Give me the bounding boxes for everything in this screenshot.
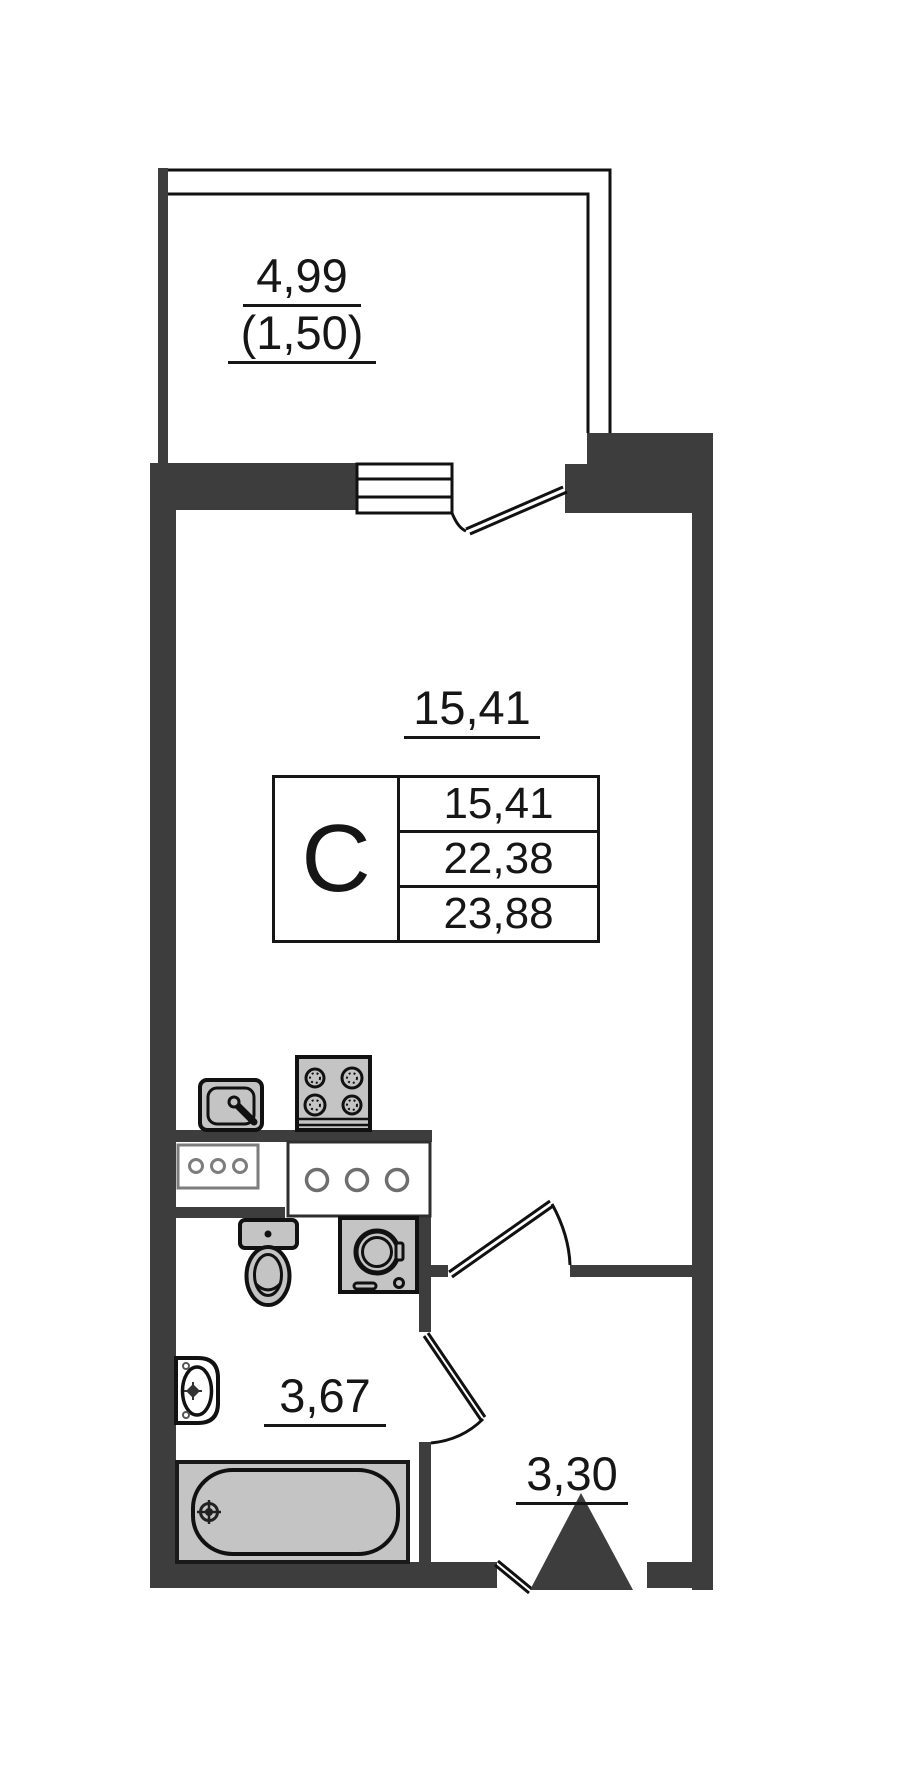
vent-box-icon	[178, 1145, 258, 1188]
bathtub-icon	[177, 1462, 408, 1562]
window-frame	[357, 464, 452, 513]
bathroom-door-arc	[431, 1419, 483, 1443]
balcony-door	[452, 487, 567, 534]
wall-balcony-left	[158, 168, 168, 464]
entrance-door	[495, 1493, 633, 1593]
floor-plan-canvas: 4,99 (1,50) 15,41 3,67 3,30 С 15,41 22,3…	[0, 0, 900, 1768]
washbasin-icon	[176, 1358, 218, 1423]
stamp-living-area: 15,41	[397, 775, 600, 833]
wall-bathroom-north	[150, 1130, 432, 1142]
wall-west	[150, 463, 176, 1588]
stamp-total-area: 23,88	[397, 885, 600, 943]
entrance-triangle-icon	[530, 1493, 633, 1590]
toilet-button	[265, 1231, 272, 1238]
room-door	[449, 1201, 570, 1277]
balcony-door-arc	[452, 513, 466, 531]
balcony-outer-line	[158, 170, 610, 433]
washbasin-screw-top	[183, 1363, 189, 1369]
stamp-type-letter: С	[272, 775, 400, 943]
counter-box-icon	[288, 1142, 430, 1216]
balcony-area-label: 4,99	[243, 252, 361, 307]
vent-box-holes	[190, 1160, 247, 1173]
wall-north-right-lower	[565, 464, 713, 513]
washbasin-screw-bottom	[183, 1412, 189, 1418]
sink-faucet-base	[229, 1097, 239, 1107]
balcony-door-leaf	[466, 487, 567, 534]
bathroom-door	[424, 1333, 485, 1443]
wall-hall-north	[570, 1265, 692, 1277]
hall-area-label: 3,30	[516, 1450, 628, 1505]
toilet-icon	[240, 1220, 297, 1305]
wall-south-left	[150, 1562, 497, 1588]
room-door-arc	[552, 1204, 570, 1265]
entrance-door-leaf	[495, 1561, 532, 1593]
stamp-apartment-area: 22,38	[397, 830, 600, 888]
wall-bathroom-east-lower	[419, 1442, 431, 1563]
washing-machine-icon	[340, 1218, 417, 1292]
washer-knob	[395, 1279, 404, 1288]
washer-panel	[354, 1283, 376, 1289]
balcony-glazing	[158, 170, 610, 433]
apartment-stamp: С 15,41 22,38 23,88	[272, 775, 600, 943]
stamp-values-column: 15,41 22,38 23,88	[400, 775, 600, 943]
room-door-leaf	[449, 1201, 553, 1277]
counter-box-holes	[307, 1170, 408, 1191]
wall-hall-north-stub	[430, 1265, 448, 1277]
kitchen-sink-icon	[200, 1080, 262, 1130]
bathroom-area-label: 3,67	[264, 1372, 386, 1427]
balcony-window	[357, 464, 452, 513]
wall-south-right	[647, 1562, 713, 1588]
bathtub-drain	[205, 1508, 213, 1516]
balcony-reduced-area-label: (1,50)	[228, 309, 376, 364]
stove-icon	[297, 1057, 370, 1130]
room-area-label: 15,41	[404, 684, 540, 739]
wall-east	[692, 513, 713, 1590]
wall-north-left	[150, 463, 357, 510]
washer-latch	[396, 1243, 403, 1260]
wall-north-right-upper	[587, 433, 713, 466]
wall-bathroom-stub	[176, 1207, 285, 1218]
bathroom-door-leaf	[424, 1333, 485, 1420]
